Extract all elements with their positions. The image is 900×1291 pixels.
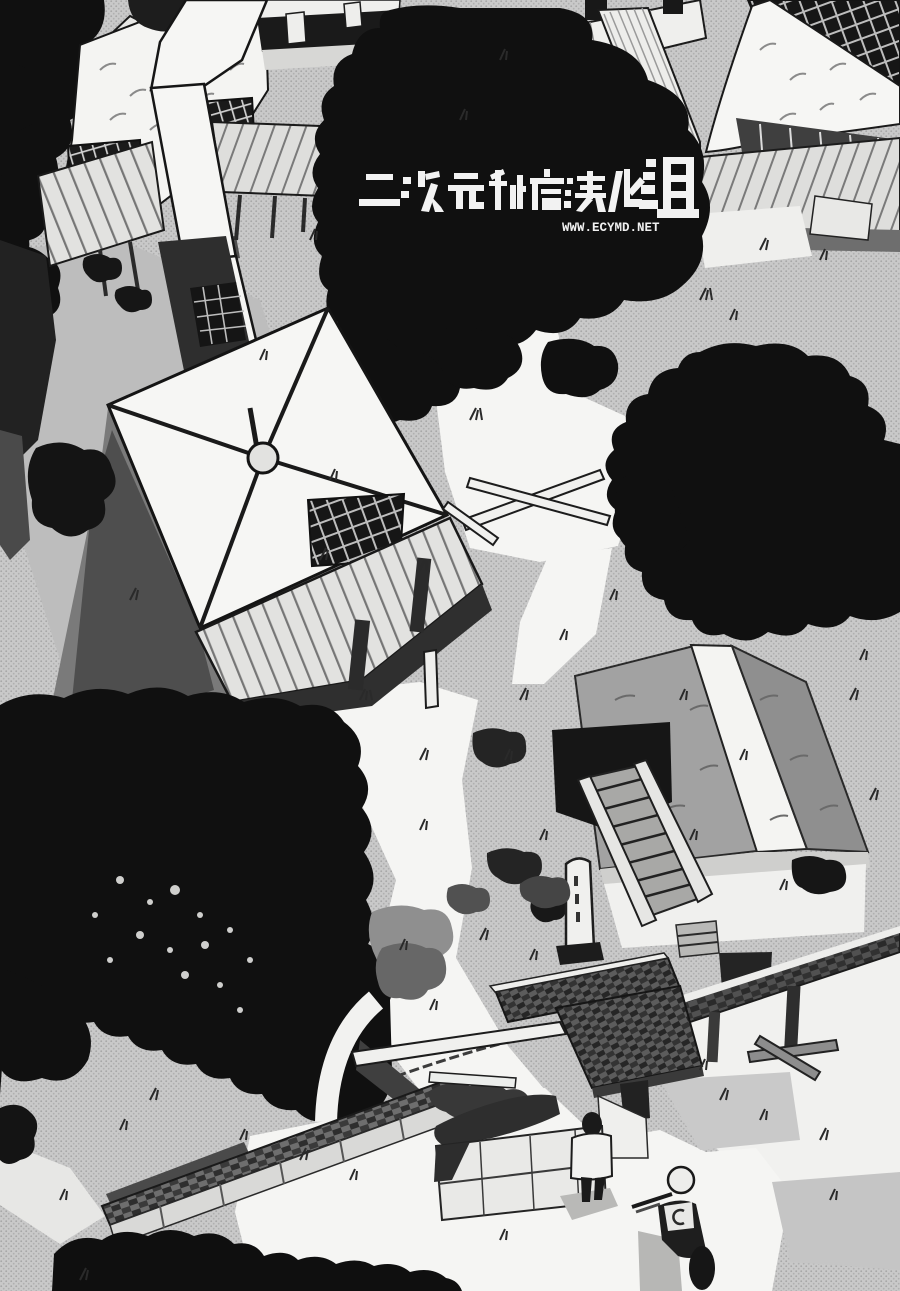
svg-text:WWW.ECYMD.NET: WWW.ECYMD.NET [562, 221, 660, 235]
